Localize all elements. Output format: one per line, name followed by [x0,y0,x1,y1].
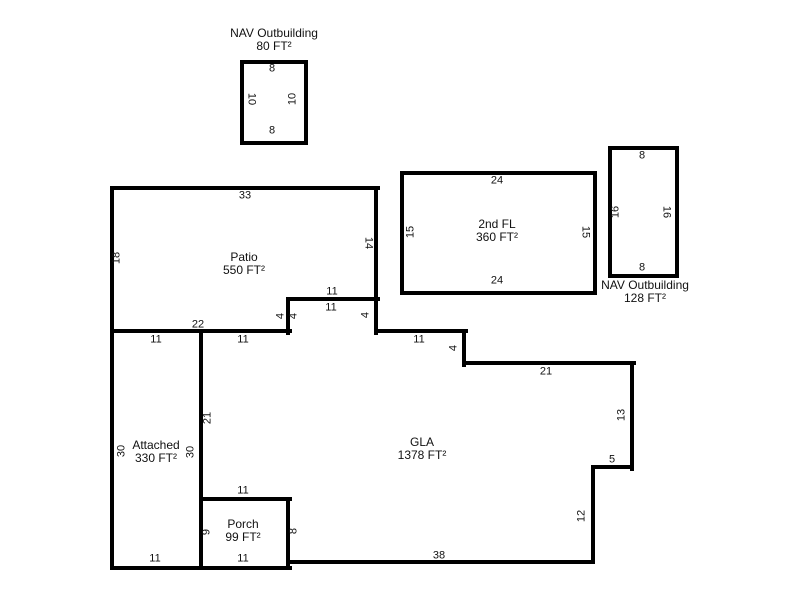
dim-nav80-top: 8 [269,64,275,75]
area-size: 1378 FT² [398,449,447,462]
dim-patio-top: 33 [239,191,251,202]
wall-secondfl-left [400,171,404,295]
dim-patio-notch-side: 4 [276,313,287,319]
wall-nav80-left [240,60,244,145]
dim-gla-upper-right: 21 [540,367,552,378]
dim-gla-right: 13 [617,409,628,421]
area-label-porch: Porch 99 FT² [225,518,260,544]
floorplan-sketch: NAV Outbuilding 80 FT² Patio 550 FT² 2nd… [0,0,800,600]
dim-nav80-right: 10 [288,93,299,105]
area-label-nav128: NAV Outbuilding 128 FT² [601,279,689,305]
wall-patio-notch-top [286,297,380,301]
dim-attached-bottom: 11 [149,554,160,565]
area-size: 360 FT² [476,231,518,244]
dim-gla-lower-step-side: 12 [577,510,588,522]
dim-gla-bottom: 38 [433,551,445,562]
area-size: 128 FT² [601,292,689,305]
area-label-attached: Attached 330 FT² [132,439,179,465]
dim-attached-left: 30 [117,445,128,457]
wall-nav128-right [675,146,679,278]
dim-patio-notch-top: 11 [326,287,337,298]
wall-porch-top [199,497,292,501]
dim-attached-top: 11 [150,335,161,346]
wall-nav80-bottom [240,141,308,145]
dim-attached-right: 30 [186,446,197,458]
area-label-gla: GLA 1378 FT² [398,436,447,462]
dim-gla-porch-side: 8 [289,528,300,534]
dim-nav80-left: 10 [246,93,257,105]
dim-nav128-top: 8 [639,151,645,162]
dim-gla-porch-top: 11 [237,486,248,497]
dim-patio-right: 14 [363,237,374,249]
dim-gla-notch-right: 4 [361,312,372,318]
area-label-nav80: NAV Outbuilding 80 FT² [230,27,318,53]
dim-nav80-bottom: 8 [269,126,275,137]
area-label-secondfl: 2nd FL 360 FT² [476,218,518,244]
wall-secondfl-bottom [400,291,597,295]
dim-gla-top-left: 11 [237,335,248,346]
dim-patio-left: 18 [112,252,123,264]
wall-gla-lower-step-side [591,465,595,564]
dim-secondfl-bottom: 24 [491,276,503,287]
dim-secondfl-top: 24 [491,176,503,187]
dim-nav128-right: 16 [661,206,672,218]
dim-secondfl-right: 15 [580,226,591,238]
dim-gla-lower-step-top: 5 [609,455,615,466]
dim-gla-notch-top: 11 [325,303,336,314]
wall-gla-right [630,361,634,471]
wall-gla-step1-top [374,329,468,333]
dim-nav128-left: 16 [611,206,622,218]
dim-gla-left: 21 [203,412,214,424]
area-size: 550 FT² [223,264,265,277]
area-size: 330 FT² [132,452,179,465]
area-size: 80 FT² [230,40,318,53]
wall-gla-lower-step-top [591,465,634,469]
area-label-patio: Patio 550 FT² [223,251,265,277]
dim-gla-step-side: 4 [449,345,460,351]
area-size: 99 FT² [225,531,260,544]
dim-gla-step-top: 11 [413,335,424,346]
dim-gla-notch-left: 4 [289,313,300,319]
wall-nav80-right [304,60,308,145]
dim-porch-bottom: 11 [237,554,248,565]
wall-secondfl-right [593,171,597,295]
dim-nav128-bottom: 8 [639,263,645,274]
dim-secondfl-left: 15 [406,226,417,238]
dim-porch-left: 9 [202,529,213,535]
wall-patio-right [374,186,378,335]
wall-gla-upper-right-top [462,361,636,365]
dim-patio-bottom: 22 [192,320,204,331]
wall-attached-left [110,329,114,570]
